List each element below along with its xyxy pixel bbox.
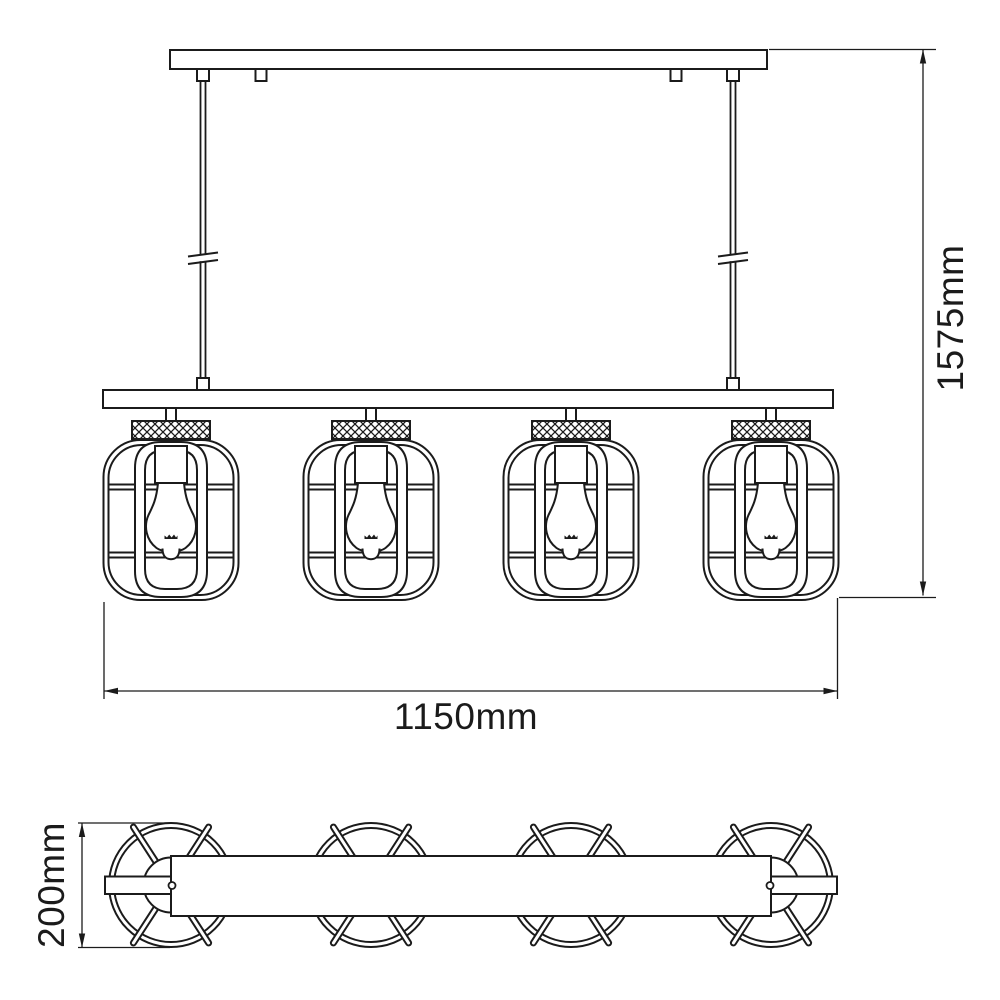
- lamp-bar-front: [103, 390, 833, 408]
- bracket-hole-right: [767, 882, 774, 889]
- technical-drawing-page: 1150mm 1575mm 200mm: [0, 0, 1000, 1000]
- lamp-cage-4: [704, 408, 839, 600]
- ceiling-plate-tabs: [197, 69, 739, 82]
- ceiling-plate: [170, 50, 767, 69]
- front-view: [103, 50, 839, 600]
- end-bracket-left: [105, 877, 171, 895]
- width-dimension-label: 1150mm: [366, 699, 566, 735]
- dimension-width: [104, 598, 838, 699]
- lamp-cage-2: [304, 408, 439, 600]
- suspension-cable-right: [718, 81, 748, 391]
- lamp-cage-3: [504, 408, 639, 600]
- height-dimension-label: 1575mm: [933, 218, 969, 418]
- suspension-cable-left: [188, 81, 218, 391]
- depth-dimension-label: 200mm: [34, 785, 70, 985]
- bottom-view: [105, 823, 837, 947]
- bracket-hole-left: [169, 882, 176, 889]
- lamp-cage-1: [104, 408, 239, 600]
- pendant-lamp-line-drawing: [0, 0, 1000, 1000]
- end-bracket-right: [771, 877, 837, 895]
- lamp-bar-bottom: [171, 856, 771, 916]
